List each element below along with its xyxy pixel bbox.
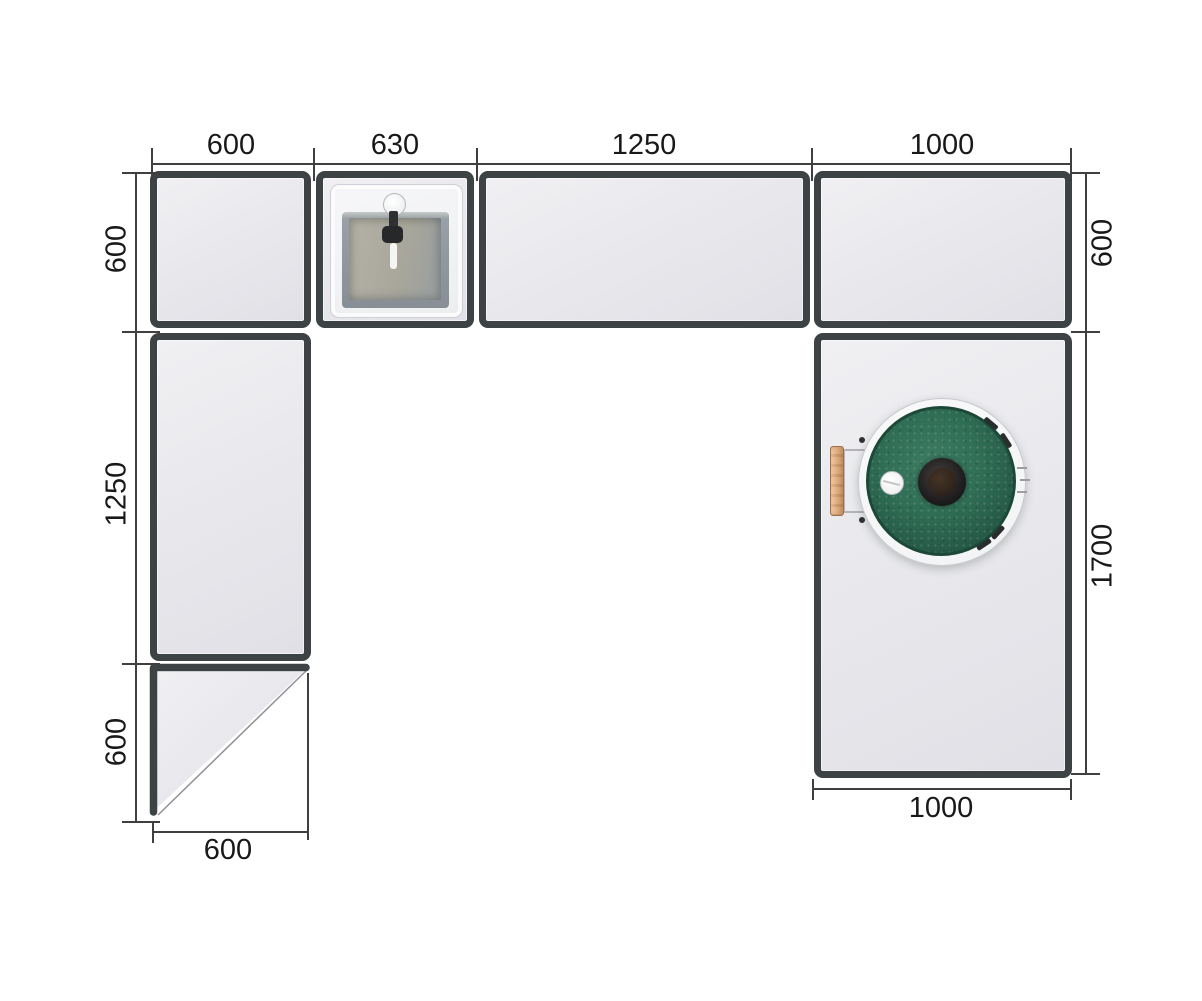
dim-label-left-600b: 600 [103,718,132,766]
dim-label-right-1700: 1700 [1089,524,1118,589]
grill-handle-icon [830,446,844,516]
dim-tick [1071,773,1100,775]
dim-line [135,172,137,823]
dim-tick [313,148,315,181]
grill-hinge-tick [1020,479,1030,481]
dim-tick [1070,148,1072,181]
dim-tick [812,779,814,800]
grill-vent-cap-icon [880,471,904,495]
dim-tick [122,821,160,823]
grill-knob-center [928,468,956,496]
kamado-grill [858,398,1026,566]
grill-hinge-tick [1017,491,1027,493]
dim-line [812,788,1071,790]
dim-label-left-600a: 600 [103,225,132,273]
grill-hinge-tick [1017,467,1027,469]
corner-worktop-surface [157,672,303,808]
dim-label-top-1250: 1250 [612,131,677,160]
module-corner-diagonal [146,655,318,850]
dim-line [151,163,1071,165]
dim-tick [151,148,153,181]
grill-bracket-pin [859,517,865,523]
grill-bracket-pin [859,437,865,443]
dim-tick [476,148,478,181]
dim-tick [122,331,160,333]
module-left-tall-1250 [150,333,311,661]
module-top-right-1000 [814,171,1072,328]
dim-line [152,831,308,833]
dim-label-left-1250: 1250 [103,462,132,527]
dim-extension-line [307,673,309,840]
dim-label-bottom-1000: 1000 [909,794,974,823]
module-top-left-600 [150,171,311,328]
dim-label-top-630: 630 [371,131,419,160]
dim-label-bottom-600: 600 [204,836,252,865]
dim-tick [1070,779,1072,800]
dim-tick [811,148,813,181]
module-worktop-1250 [479,171,810,328]
dim-label-top-600: 600 [207,131,255,160]
dim-tick [122,172,160,174]
dim-tick [1071,331,1100,333]
faucet-head-icon [382,226,403,243]
floor-plan: 600 630 1250 1000 600 1250 600 600 1700 … [0,0,1202,1001]
dim-label-top-1000: 1000 [910,131,975,160]
dim-tick [1071,172,1100,174]
faucet-stream [390,243,397,269]
dim-label-right-600: 600 [1089,219,1118,267]
dim-tick [122,663,160,665]
grill-knob [918,458,966,506]
dim-tick [152,821,154,843]
